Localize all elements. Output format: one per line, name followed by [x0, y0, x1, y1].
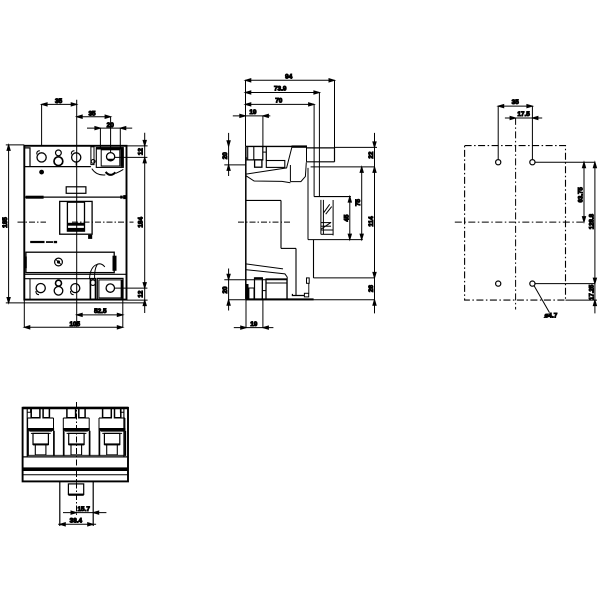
svg-text:19: 19 [249, 109, 257, 116]
svg-text:20: 20 [107, 122, 115, 129]
svg-text:52.5: 52.5 [94, 308, 107, 315]
svg-text:63.75: 63.75 [578, 187, 585, 203]
svg-text:17.5: 17.5 [517, 111, 530, 118]
svg-text:15.7: 15.7 [77, 506, 90, 513]
svg-text:ø4.7: ø4.7 [545, 312, 558, 319]
svg-text:94: 94 [285, 73, 293, 80]
svg-text:35: 35 [512, 99, 520, 106]
svg-text:38.4: 38.4 [70, 518, 83, 525]
svg-text:105: 105 [69, 321, 80, 328]
svg-text:35: 35 [55, 98, 63, 105]
svg-text:114: 114 [368, 216, 375, 227]
svg-text:12: 12 [138, 290, 145, 298]
svg-text:128.8: 128.8 [589, 213, 596, 229]
svg-text:17.25: 17.25 [589, 284, 596, 300]
svg-text:20: 20 [222, 152, 229, 160]
svg-text:70: 70 [275, 97, 283, 104]
svg-text:73.9: 73.9 [274, 86, 287, 93]
svg-text:75: 75 [355, 199, 362, 207]
svg-text:185: 185 [2, 217, 9, 228]
svg-text:12: 12 [138, 148, 145, 156]
svg-text:45: 45 [343, 214, 350, 222]
svg-text:22: 22 [368, 151, 375, 159]
svg-text:26: 26 [368, 285, 375, 293]
svg-text:35: 35 [88, 111, 96, 118]
svg-text:19: 19 [250, 321, 258, 328]
svg-text:184: 184 [138, 217, 145, 228]
svg-text:20: 20 [222, 286, 229, 294]
